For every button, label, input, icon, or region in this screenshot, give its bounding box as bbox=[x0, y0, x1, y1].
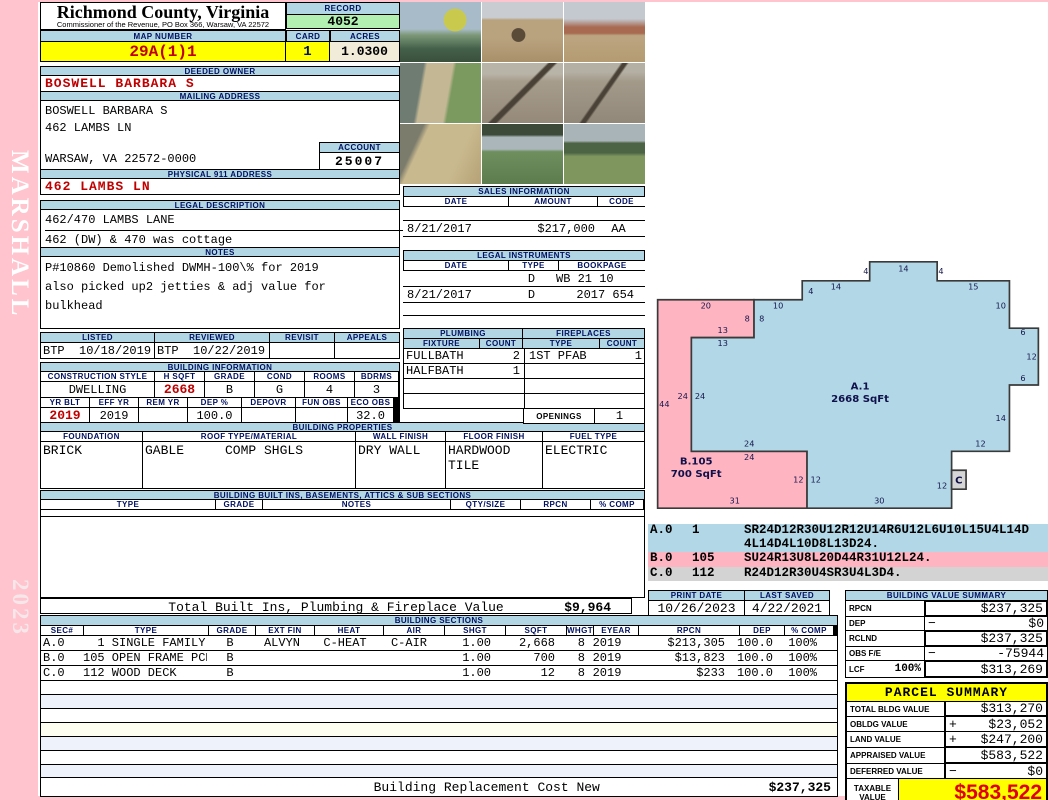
land-label: LAND VALUE bbox=[847, 732, 945, 748]
col-depovr: DEPOVR bbox=[242, 398, 295, 407]
mailing-line-1: BOSWELL BARBARA S bbox=[45, 103, 399, 120]
ecoobs-value: 32.0 bbox=[348, 408, 393, 423]
svg-text:4: 4 bbox=[863, 266, 868, 276]
appeals-value bbox=[334, 342, 400, 359]
col-instr-date: DATE bbox=[404, 261, 508, 270]
col-sec-comp: % COMP bbox=[785, 626, 833, 635]
col-instr-bookpage: BOOKPAGE bbox=[559, 261, 645, 270]
svg-text:31: 31 bbox=[730, 495, 740, 505]
hsqft-value: 2668 bbox=[155, 382, 204, 397]
col-grade: GRADE bbox=[205, 372, 254, 381]
svg-text:14: 14 bbox=[831, 281, 841, 291]
col-sec-rpcn: RPCN bbox=[639, 626, 739, 635]
floor-finish-value-1: HARDWOOD bbox=[448, 443, 540, 458]
rooms-value: 4 bbox=[305, 382, 354, 397]
funobs-value bbox=[296, 408, 347, 423]
svg-text:13: 13 bbox=[717, 325, 727, 335]
col-funobs: FUN OBS bbox=[296, 398, 347, 407]
photo-thumbnail-7 bbox=[400, 124, 481, 184]
photo-grid bbox=[400, 2, 645, 185]
total-built-ins-row: Total Built Ins, Plumbing & Fireplace Va… bbox=[40, 598, 632, 614]
col-fixture: FIXTURE bbox=[403, 338, 480, 349]
total-built-ins-value: $9,964 bbox=[564, 600, 611, 615]
svg-text:20: 20 bbox=[701, 300, 711, 310]
svg-text:30: 30 bbox=[874, 495, 884, 505]
col-sec-sqft: SQFT bbox=[506, 626, 566, 635]
bvs-rpcn-label: RPCN bbox=[845, 600, 925, 617]
photo-thumbnail-3 bbox=[564, 2, 645, 62]
obldg-label: OBLDG VALUE bbox=[847, 717, 945, 732]
empty-section-row bbox=[40, 709, 838, 723]
empty-section-row bbox=[40, 695, 838, 709]
sales-info-group: SALES INFORMATION DATE AMOUNT CODE 8/21/… bbox=[403, 186, 645, 251]
col-bi-qty: QTY/SIZE bbox=[451, 500, 520, 509]
mailing-line-2: 462 LAMBS LN bbox=[45, 120, 399, 137]
depovr-value bbox=[242, 408, 295, 423]
col-sale-amount: AMOUNT bbox=[509, 197, 597, 206]
plumbing-row: FULLBATH 2 1ST PFAB 1 bbox=[403, 349, 645, 364]
deeded-owner-value: BOSWELL BARBARA S bbox=[40, 75, 400, 92]
col-sec-whgt: WHGT bbox=[567, 626, 593, 635]
built-ins-group: BUILDING BUILT INS, BASEMENTS, ATTICS & … bbox=[40, 490, 645, 598]
notes-line-1: P#10860 Demolished DWMH-100\% for 2019 bbox=[45, 259, 399, 278]
col-sec-shgt: SHGT bbox=[445, 626, 505, 635]
svg-text:24: 24 bbox=[695, 391, 705, 401]
col-bi-comp: % COMP bbox=[591, 500, 643, 509]
bvs-obs-label: OBS F/E bbox=[845, 646, 925, 661]
roof-material-value: COMP SHGLS bbox=[225, 443, 303, 458]
col-sec-extfin: EXT FIN bbox=[256, 626, 314, 635]
svg-text:4: 4 bbox=[938, 266, 943, 276]
bvs-rclnd-label: RCLND bbox=[845, 630, 925, 647]
col-sec-heat: HEAT bbox=[315, 626, 383, 635]
svg-text:12: 12 bbox=[975, 439, 985, 449]
photo-thumbnail-1 bbox=[400, 2, 481, 62]
svg-text:8: 8 bbox=[759, 314, 764, 324]
svg-text:12: 12 bbox=[937, 480, 947, 490]
svg-text:12: 12 bbox=[1026, 351, 1036, 361]
svg-text:C: C bbox=[955, 476, 962, 487]
svg-text:6: 6 bbox=[1020, 327, 1025, 337]
built-ins-empty-area bbox=[40, 516, 645, 598]
legal-line-1: 462/470 LAMBS LANE bbox=[45, 211, 403, 231]
revisit-value bbox=[269, 342, 335, 359]
appraised-value: $583,522 bbox=[945, 748, 1046, 764]
col-sec: SEC# bbox=[41, 626, 83, 635]
legal-description-box: 462/470 LAMBS LANE 462 (DW) & 470 was co… bbox=[40, 209, 400, 248]
bvs-obs-value: −-75944 bbox=[924, 646, 1048, 661]
review-group: LISTED REVIEWED REVISIT APPEALS BTP 10/1… bbox=[40, 332, 400, 359]
instrument-row: D WB 21 10 bbox=[403, 271, 645, 287]
bdrms-value: 3 bbox=[355, 382, 398, 397]
col-bi-rpcn: RPCN bbox=[521, 500, 590, 509]
bvs-rpcn-value: $237,325 bbox=[924, 600, 1048, 617]
card-value: 1 bbox=[285, 41, 330, 62]
photo-thumbnail-4 bbox=[400, 63, 481, 123]
col-bdrms: BDRMS bbox=[355, 372, 398, 381]
openings-row: OPENINGS 1 bbox=[523, 409, 645, 424]
col-sec-eyear: EYEAR bbox=[594, 626, 638, 635]
col-dep-pct: DEP % bbox=[188, 398, 241, 407]
grade-value: B bbox=[205, 382, 254, 397]
col-sec-grade: GRADE bbox=[209, 626, 255, 635]
col-instr-type: TYPE bbox=[509, 261, 558, 270]
col-rooms: ROOMS bbox=[305, 372, 354, 381]
county-title: Richmond County, Virginia bbox=[41, 3, 285, 21]
plumbing-row: HALFBATH 1 bbox=[403, 364, 645, 379]
col-effyr: EFF YR bbox=[90, 398, 138, 407]
taxable-value: $583,522 bbox=[899, 779, 1046, 800]
county-title-box: Richmond County, Virginia Commissioner o… bbox=[40, 2, 286, 30]
col-sec-air: AIR bbox=[384, 626, 444, 635]
svg-text:10: 10 bbox=[996, 300, 1006, 310]
sales-row bbox=[403, 207, 645, 221]
map-number-value: 29A(1)1 bbox=[40, 41, 286, 62]
bvs-dep-value: −$0 bbox=[924, 616, 1048, 631]
sidebar-vertical-year: 2023 bbox=[1, 560, 33, 655]
foundation-value: BRICK bbox=[41, 442, 142, 488]
land-value: +$247,200 bbox=[945, 732, 1046, 748]
col-bi-notes: NOTES bbox=[263, 500, 450, 509]
construction-style-value: DWELLING bbox=[41, 382, 154, 397]
col-construction-style: CONSTRUCTION STYLE bbox=[41, 372, 154, 381]
col-sec-dep: DEP bbox=[740, 626, 784, 635]
svg-text:24: 24 bbox=[744, 452, 754, 462]
col-roof: ROOF TYPE/MATERIAL bbox=[143, 432, 355, 441]
sketch-code-row-a: A.0 1 SR24D12R30U12R12U14R6U12L6U10L15U4… bbox=[648, 524, 1048, 552]
fuel-type-value: ELECTRIC bbox=[543, 442, 644, 488]
svg-text:24: 24 bbox=[677, 391, 687, 401]
plumbing-row bbox=[403, 379, 645, 394]
photo-thumbnail-9 bbox=[564, 124, 645, 184]
listed-value: BTP 10/18/2019 bbox=[40, 342, 155, 359]
legal-group: LEGAL DESCRIPTION 462/470 LAMBS LANE 462… bbox=[40, 200, 400, 329]
empty-section-row bbox=[40, 723, 838, 737]
photo-thumbnail-5 bbox=[482, 63, 563, 123]
print-info-group: PRINT DATE LAST SAVED 10/26/2023 4/22/20… bbox=[648, 590, 830, 617]
roof-type-value: GABLE bbox=[145, 443, 184, 458]
section-row-a: A.0 1 SINGLE FAMILYBALVYNC-HEATC-AIR1.00… bbox=[40, 636, 838, 651]
svg-text:700 SqFt: 700 SqFt bbox=[671, 469, 722, 480]
svg-text:8: 8 bbox=[745, 314, 750, 324]
yrblt-value: 2019 bbox=[41, 408, 89, 423]
plumbing-fireplaces-group: PLUMBING FIREPLACES FIXTURE COUNT TYPE C… bbox=[403, 328, 645, 424]
col-fp-type: TYPE bbox=[522, 338, 600, 349]
col-sale-date: DATE bbox=[404, 197, 508, 206]
notes-line-2: also picked up2 jetties & adj value for bbox=[45, 278, 399, 297]
col-wall-finish: WALL FINISH bbox=[356, 432, 445, 441]
col-hsqft: H SQFT bbox=[155, 372, 204, 381]
cond-value: G bbox=[255, 382, 304, 397]
svg-text:15: 15 bbox=[968, 281, 978, 291]
col-yrblt: YR BLT bbox=[41, 398, 89, 407]
map-number-table: MAP NUMBER CARD ACRES 29A(1)1 1 1.0300 bbox=[40, 30, 400, 62]
floor-finish-value-2: TILE bbox=[448, 458, 540, 473]
legal-instruments-group: LEGAL INSTRUMENTS DATE TYPE BOOKPAGE D W… bbox=[403, 250, 645, 316]
col-bi-type: TYPE bbox=[41, 500, 215, 509]
col-cond: COND bbox=[255, 372, 304, 381]
col-sec-type: TYPE bbox=[84, 626, 208, 635]
replacement-cost-value: $237,325 bbox=[769, 780, 831, 795]
col-foundation: FOUNDATION bbox=[41, 432, 142, 441]
record-value: 4052 bbox=[286, 14, 400, 29]
svg-text:14: 14 bbox=[898, 263, 908, 273]
record-box: RECORD 4052 bbox=[286, 2, 400, 29]
notes-box: P#10860 Demolished DWMH-100\% for 2019 a… bbox=[40, 256, 400, 329]
building-value-summary: BUILDING VALUE SUMMARY RPCN $237,325 DEP… bbox=[845, 590, 1048, 678]
photo-thumbnail-8 bbox=[482, 124, 563, 184]
acres-value: 1.0300 bbox=[329, 41, 400, 62]
wall-finish-value: DRY WALL bbox=[356, 442, 445, 488]
appraised-label: APPRAISED VALUE bbox=[847, 748, 945, 764]
photo-thumbnail-2 bbox=[482, 2, 563, 62]
building-sections-table: BUILDING SECTIONS SEC# TYPE GRADE EXT FI… bbox=[40, 615, 838, 797]
openings-label: OPENINGS bbox=[523, 408, 595, 424]
col-fuel-type: FUEL TYPE bbox=[543, 432, 644, 441]
bvs-dep-label: DEP bbox=[845, 616, 925, 631]
instrument-row: 8/21/2017 D 2017 654 bbox=[403, 287, 645, 303]
replacement-cost-label: Building Replacement Cost New bbox=[374, 780, 600, 795]
sketch-codes: A.0 1 SR24D12R30U12R12U14R6U12L6U10L15U4… bbox=[648, 524, 1048, 581]
svg-text:2668 SqFt: 2668 SqFt bbox=[831, 394, 889, 405]
svg-text:13: 13 bbox=[717, 338, 727, 348]
county-subtitle: Commissioner of the Revenue, PO Box 366,… bbox=[41, 21, 285, 29]
svg-text:44: 44 bbox=[659, 399, 669, 409]
plumbing-row bbox=[403, 394, 645, 409]
empty-section-row bbox=[40, 751, 838, 765]
effyr-value: 2019 bbox=[90, 408, 138, 423]
building-properties-group: BUILDING PROPERTIES FOUNDATION ROOF TYPE… bbox=[40, 422, 645, 489]
photo-thumbnail-6 bbox=[564, 63, 645, 123]
empty-section-row bbox=[40, 737, 838, 751]
section-row-b: B.0105 OPEN FRAME PCHB1.0070082019$13,82… bbox=[40, 651, 838, 666]
physical-address-value: 462 LAMBS LN bbox=[40, 178, 400, 195]
svg-text:14: 14 bbox=[996, 413, 1006, 423]
bvs-lcf-value: $313,269 bbox=[924, 660, 1048, 678]
taxable-label: TAXABLEVALUE bbox=[847, 779, 899, 800]
deferred-label: DEFERRED VALUE bbox=[847, 764, 945, 779]
notes-line-3: bulkhead bbox=[45, 297, 399, 316]
building-info-group: BUILDING INFORMATION CONSTRUCTION STYLE … bbox=[40, 362, 400, 424]
col-fp-count: COUNT bbox=[599, 338, 645, 349]
svg-text:12: 12 bbox=[811, 475, 821, 485]
svg-text:12: 12 bbox=[793, 475, 803, 485]
owner-group: DEEDED OWNER BOSWELL BARBARA S MAILING A… bbox=[40, 66, 400, 195]
svg-text:4: 4 bbox=[808, 286, 813, 296]
dep-pct-value: 100.0 bbox=[188, 408, 241, 423]
total-bldg-label: TOTAL BLDG VALUE bbox=[847, 702, 945, 717]
sketch-code-row-c: C.0 112 R24D12R30U4SR3U4L3D4. bbox=[648, 567, 1048, 582]
obldg-value: +$23,052 bbox=[945, 717, 1046, 732]
parcel-summary: PARCEL SUMMARY TOTAL BLDG VALUE $313,270… bbox=[845, 682, 1048, 800]
empty-section-row bbox=[40, 681, 838, 695]
property-record-card: MARSHALL 2023 Richmond County, Virginia … bbox=[0, 0, 1050, 800]
svg-text:6: 6 bbox=[1020, 373, 1025, 383]
empty-section-row bbox=[40, 765, 838, 778]
total-built-ins-label: Total Built Ins, Plumbing & Fireplace Va… bbox=[168, 600, 503, 615]
parcel-summary-label: PARCEL SUMMARY bbox=[847, 684, 1046, 702]
account-box: ACCOUNT 25007 bbox=[319, 142, 400, 170]
col-ecoobs: ECO OBS bbox=[348, 398, 393, 407]
col-fixture-count: COUNT bbox=[479, 338, 523, 349]
total-bldg-value: $313,270 bbox=[945, 702, 1046, 717]
building-sketch: 4144141541020881313242444242412123130121… bbox=[648, 250, 1048, 520]
remyr-value bbox=[139, 408, 187, 423]
bvs-lcf-label: LCF100% bbox=[845, 660, 925, 678]
svg-text:A.1: A.1 bbox=[851, 382, 870, 393]
instrument-row bbox=[403, 303, 645, 316]
sales-row: 8/21/2017 $217,000 AA bbox=[403, 221, 645, 237]
col-floor-finish: FLOOR FINISH bbox=[446, 432, 542, 441]
bvs-rclnd-value: $237,325 bbox=[924, 630, 1048, 647]
sketch-code-row-b: B.0 105 SU24R13U8L20D44R31U12L24. bbox=[648, 552, 1048, 567]
account-value: 25007 bbox=[319, 152, 400, 170]
openings-value: 1 bbox=[594, 408, 645, 424]
deferred-value: −$0 bbox=[945, 764, 1046, 779]
mailing-address-box: BOSWELL BARBARA S 462 LAMBS LN WARSAW, V… bbox=[40, 100, 400, 170]
reviewed-value: BTP 10/22/2019 bbox=[154, 342, 270, 359]
sketch-svg: 4144141541020881313242444242412123130121… bbox=[648, 250, 1048, 520]
svg-text:B.105: B.105 bbox=[680, 457, 713, 468]
svg-text:10: 10 bbox=[773, 300, 783, 310]
col-bi-grade: GRADE bbox=[216, 500, 262, 509]
section-row-c: C.0112 WOOD DECKB1.001282019$233100.0100… bbox=[40, 666, 838, 681]
sales-row bbox=[403, 237, 645, 251]
sidebar-vertical-marshall: MARSHALL bbox=[1, 150, 33, 310]
svg-text:24: 24 bbox=[744, 439, 754, 449]
col-remyr: REM YR bbox=[139, 398, 187, 407]
replacement-cost-row: Building Replacement Cost New $237,325 bbox=[40, 778, 838, 797]
col-sale-code: CODE bbox=[598, 197, 645, 206]
